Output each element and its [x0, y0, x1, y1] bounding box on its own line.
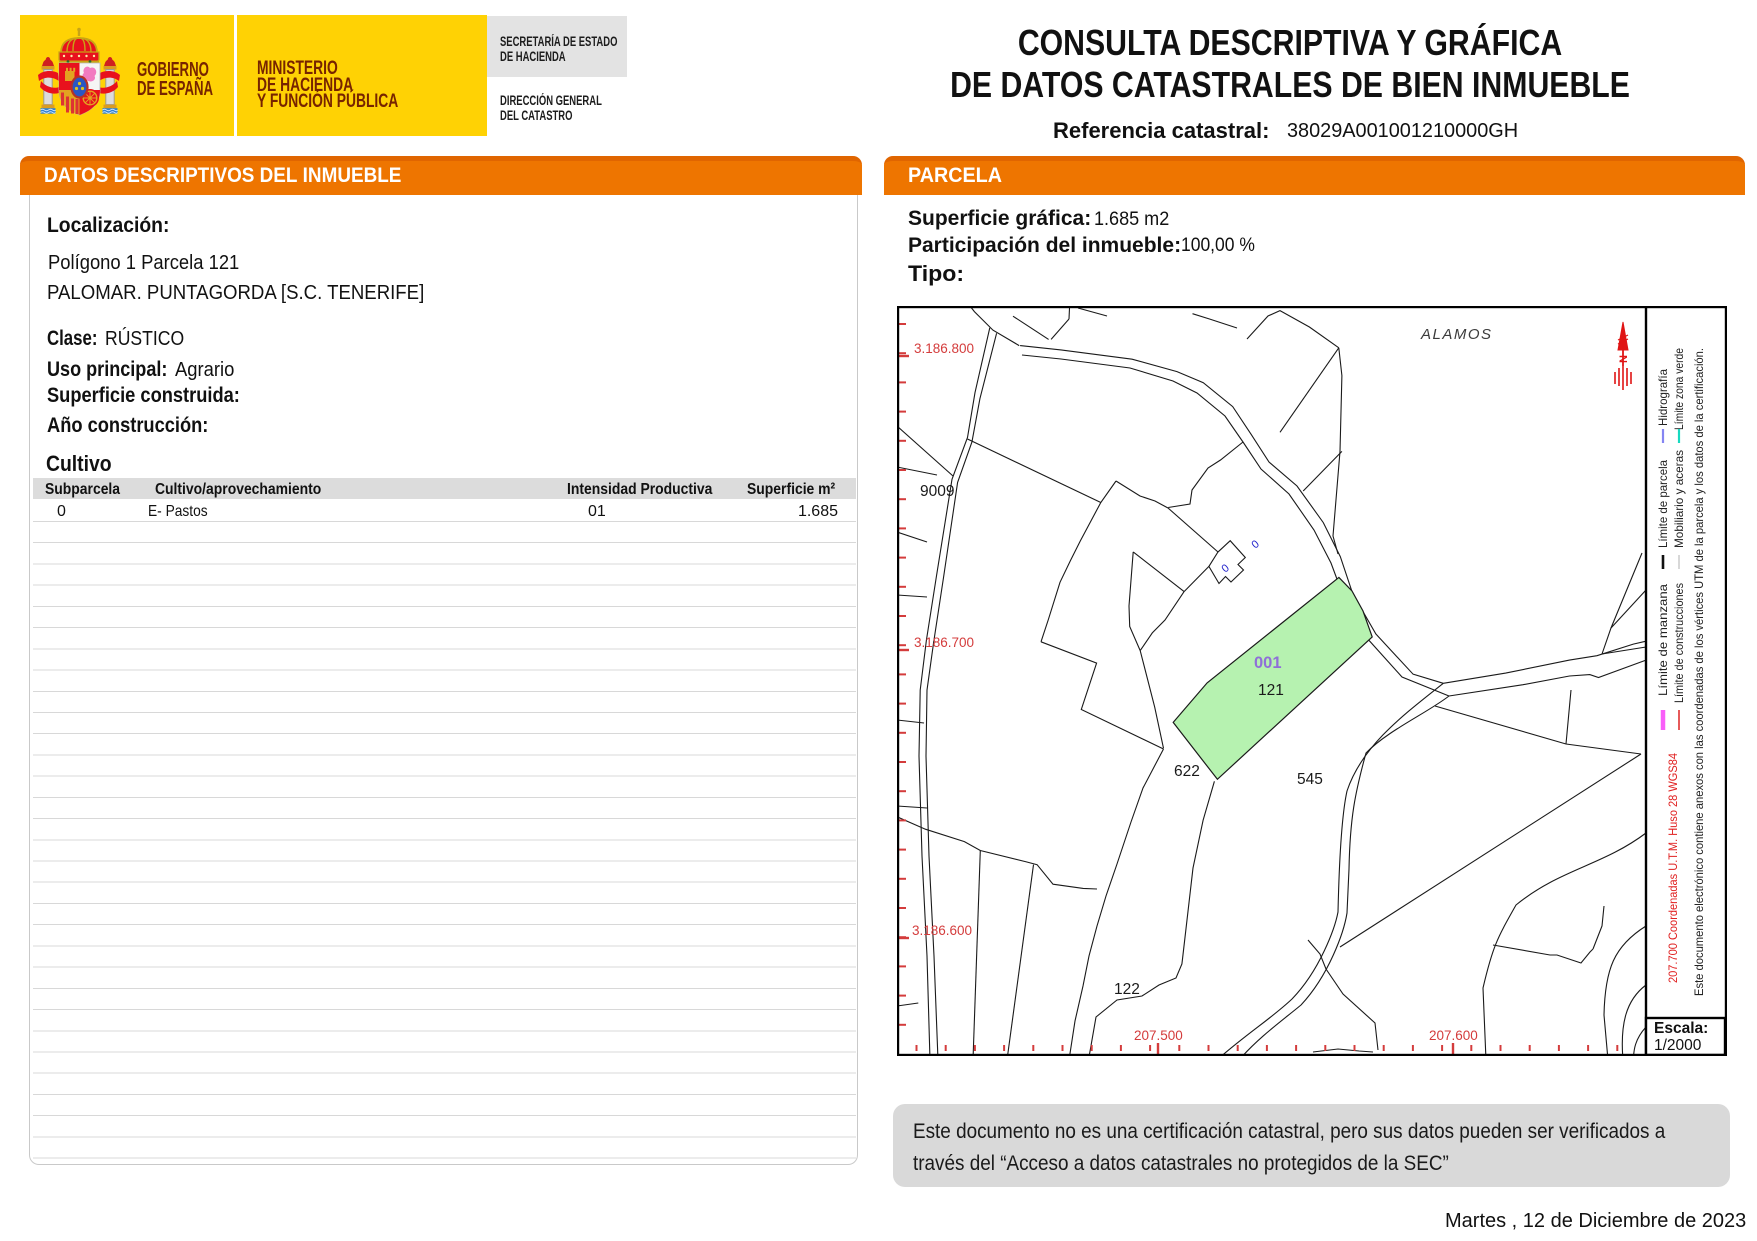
svg-text:207.600: 207.600 [1429, 1028, 1478, 1043]
svg-text:001: 001 [1254, 654, 1282, 672]
svg-text:121: 121 [1258, 682, 1284, 699]
svg-text:Este documento electrónico con: Este documento electrónico contiene anex… [1693, 348, 1706, 996]
svg-text:1/2000: 1/2000 [1654, 1037, 1702, 1054]
svg-text:Límite de construcciones: Límite de construcciones [1673, 583, 1686, 703]
svg-text:545: 545 [1297, 771, 1323, 788]
svg-text:Límite zona verde: Límite zona verde [1673, 348, 1686, 430]
svg-text:9009: 9009 [920, 483, 954, 500]
svg-text:ALAMOS: ALAMOS [1420, 326, 1493, 343]
svg-text:3.186.800: 3.186.800 [914, 341, 974, 356]
svg-text:3.186.600: 3.186.600 [912, 923, 972, 938]
svg-text:3.186.700: 3.186.700 [914, 635, 974, 650]
svg-text:207.500: 207.500 [1134, 1028, 1183, 1043]
svg-text:Hidrografía: Hidrografía [1657, 368, 1670, 426]
svg-text:Mobiliario y aceras: Mobiliario y aceras [1673, 450, 1686, 548]
svg-text:Límite de manzana: Límite de manzana [1657, 583, 1670, 696]
svg-text:Escala:: Escala: [1654, 1020, 1708, 1037]
svg-text:122: 122 [1114, 981, 1140, 998]
svg-text:Límite de parcela: Límite de parcela [1657, 459, 1670, 548]
svg-text:622: 622 [1174, 763, 1200, 780]
svg-text:207.700 Coordenadas U.T.M. Hus: 207.700 Coordenadas U.T.M. Huso 28 WGS84 [1666, 753, 1680, 983]
svg-text:N: N [1618, 355, 1630, 363]
